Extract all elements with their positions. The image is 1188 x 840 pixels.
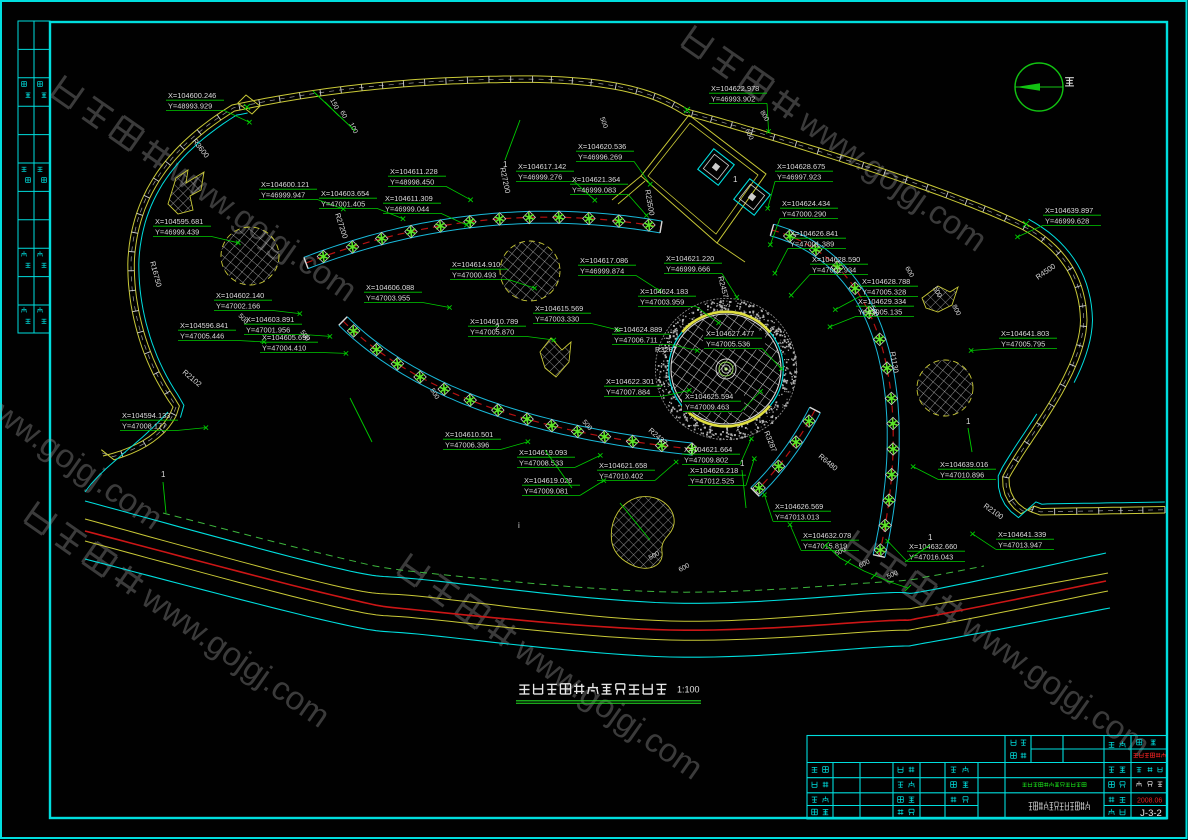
svg-text:X=104632.660: X=104632.660 xyxy=(909,542,957,551)
svg-text:X=104628.675: X=104628.675 xyxy=(777,162,825,171)
svg-text:Y=46999.439: Y=46999.439 xyxy=(155,227,199,236)
svg-text:Y=47008.177: Y=47008.177 xyxy=(122,421,166,430)
svg-text:Y=46993.902: Y=46993.902 xyxy=(711,94,755,103)
svg-text:1: 1 xyxy=(161,470,166,479)
svg-text:Y=46999.666: Y=46999.666 xyxy=(666,264,710,273)
svg-text:X=104611.228: X=104611.228 xyxy=(390,167,438,176)
svg-text:Y=47001.934: Y=47001.934 xyxy=(812,265,856,274)
svg-text:X=104628.590: X=104628.590 xyxy=(812,255,860,264)
svg-text:X=104624.434: X=104624.434 xyxy=(782,199,830,208)
svg-text:X=104602.140: X=104602.140 xyxy=(216,291,264,300)
svg-text:Y=47010.896: Y=47010.896 xyxy=(940,470,984,479)
svg-text:X=104626.218: X=104626.218 xyxy=(690,466,738,475)
svg-text:X=104621.664: X=104621.664 xyxy=(684,445,732,454)
svg-text:X=104624.889: X=104624.889 xyxy=(614,325,662,334)
svg-text:Y=47005.135: Y=47005.135 xyxy=(858,307,902,316)
svg-text:X=104596.841: X=104596.841 xyxy=(180,321,228,330)
svg-text:X=104611.309: X=104611.309 xyxy=(385,194,433,203)
svg-text:Y=47000.493: Y=47000.493 xyxy=(452,270,496,279)
svg-text:Y=47010.402: Y=47010.402 xyxy=(599,471,643,480)
svg-text:Y=46997.923: Y=46997.923 xyxy=(777,172,821,181)
svg-text:i: i xyxy=(518,521,520,530)
svg-text:X=104621.658: X=104621.658 xyxy=(599,461,647,470)
svg-text:J-3-2: J-3-2 xyxy=(1140,808,1162,819)
svg-text:Y=47005.795: Y=47005.795 xyxy=(1001,339,1045,348)
svg-text:Y=46996.269: Y=46996.269 xyxy=(578,152,622,161)
svg-text:Y=47009.463: Y=47009.463 xyxy=(685,402,729,411)
svg-text:Y=48998.450: Y=48998.450 xyxy=(390,177,434,186)
svg-text:X=104595.681: X=104595.681 xyxy=(155,217,203,226)
svg-text:Y=47005.870: Y=47005.870 xyxy=(470,327,514,336)
svg-text:Y=47005.446: Y=47005.446 xyxy=(180,331,224,340)
svg-text:X=104603.654: X=104603.654 xyxy=(321,189,369,198)
svg-text:Y=47013.013: Y=47013.013 xyxy=(775,512,819,521)
svg-text:X=104622.978: X=104622.978 xyxy=(711,84,759,93)
svg-text:R3287: R3287 xyxy=(655,345,677,354)
svg-text:X=104639.897: X=104639.897 xyxy=(1045,206,1093,215)
svg-text:Y=46999.874: Y=46999.874 xyxy=(580,266,624,275)
svg-text:1: 1 xyxy=(733,175,738,184)
svg-text:Y=47000.290: Y=47000.290 xyxy=(782,209,826,218)
svg-text:X=104615.569: X=104615.569 xyxy=(535,304,583,313)
svg-text:X=104624.183: X=104624.183 xyxy=(640,287,688,296)
svg-text:Y=48993.929: Y=48993.929 xyxy=(168,101,212,110)
svg-text:Y=46999.083: Y=46999.083 xyxy=(572,185,616,194)
svg-text:1: 1 xyxy=(928,533,933,542)
svg-text:Y=47007.884: Y=47007.884 xyxy=(606,387,650,396)
svg-text:Y=47002.166: Y=47002.166 xyxy=(216,301,260,310)
svg-text:Y=47001.405: Y=47001.405 xyxy=(321,199,365,208)
svg-text:X=104628.788: X=104628.788 xyxy=(862,277,910,286)
svg-text:Y=46999.628: Y=46999.628 xyxy=(1045,216,1089,225)
svg-text:Y=47004.410: Y=47004.410 xyxy=(262,343,306,352)
svg-text:X=104614.910: X=104614.910 xyxy=(452,260,500,269)
svg-text:Y=47009.802: Y=47009.802 xyxy=(684,455,728,464)
svg-text:1:100: 1:100 xyxy=(677,685,700,695)
svg-text:X=104639.016: X=104639.016 xyxy=(940,460,988,469)
svg-text:X=104632.078: X=104632.078 xyxy=(803,531,851,540)
svg-text:X=104594.133: X=104594.133 xyxy=(122,411,170,420)
svg-text:Y=46999.276: Y=46999.276 xyxy=(518,172,562,181)
svg-text:1: 1 xyxy=(740,459,745,468)
svg-text:Y=46999.044: Y=46999.044 xyxy=(385,204,429,213)
svg-text:X=104617.142: X=104617.142 xyxy=(518,162,566,171)
svg-text:X=104610.501: X=104610.501 xyxy=(445,430,493,439)
svg-text:Y=47005.328: Y=47005.328 xyxy=(862,287,906,296)
svg-text:Y=47003.330: Y=47003.330 xyxy=(535,314,579,323)
svg-text:X=104625.594: X=104625.594 xyxy=(685,392,733,401)
svg-text:X=104603.891: X=104603.891 xyxy=(246,315,294,324)
svg-text:Y=47009.081: Y=47009.081 xyxy=(524,486,568,495)
svg-text:2: 2 xyxy=(495,323,500,332)
svg-text:X=104606.088: X=104606.088 xyxy=(366,283,414,292)
svg-text:X=104617.086: X=104617.086 xyxy=(580,256,628,265)
svg-text:1: 1 xyxy=(966,417,971,426)
svg-text:X=104627.477: X=104627.477 xyxy=(706,329,754,338)
svg-text:X=104641.803: X=104641.803 xyxy=(1001,329,1049,338)
svg-text:X=104620.536: X=104620.536 xyxy=(578,142,626,151)
svg-text:2008.06: 2008.06 xyxy=(1137,798,1162,805)
svg-text:Y=47012.525: Y=47012.525 xyxy=(690,476,734,485)
svg-text:X=104600.121: X=104600.121 xyxy=(261,180,309,189)
svg-text:Y=47006.396: Y=47006.396 xyxy=(445,440,489,449)
svg-text:Y=47005.536: Y=47005.536 xyxy=(706,339,750,348)
svg-text:Y=47016.043: Y=47016.043 xyxy=(909,552,953,561)
svg-text:X=104619.093: X=104619.093 xyxy=(519,448,567,457)
svg-text:Y=47013.947: Y=47013.947 xyxy=(998,540,1042,549)
svg-text:X=104626.841: X=104626.841 xyxy=(790,229,838,238)
svg-text:Y=47003.959: Y=47003.959 xyxy=(640,297,684,306)
svg-text:X=104600.246: X=104600.246 xyxy=(168,91,216,100)
svg-text:X=104621.364: X=104621.364 xyxy=(572,175,620,184)
svg-text:1: 1 xyxy=(503,160,508,169)
svg-text:X=104626.569: X=104626.569 xyxy=(775,502,823,511)
svg-text:Y=47001.389: Y=47001.389 xyxy=(790,239,834,248)
svg-text:Y=47003.955: Y=47003.955 xyxy=(366,293,410,302)
svg-text:X=104641.339: X=104641.339 xyxy=(998,530,1046,539)
svg-text:Y=46999.947: Y=46999.947 xyxy=(261,190,305,199)
svg-text:Y=47006.711: Y=47006.711 xyxy=(614,335,658,344)
svg-text:X=104621.220: X=104621.220 xyxy=(666,254,714,263)
svg-text:X=104629.334: X=104629.334 xyxy=(858,297,906,306)
svg-text:X=104622.301: X=104622.301 xyxy=(606,377,654,386)
